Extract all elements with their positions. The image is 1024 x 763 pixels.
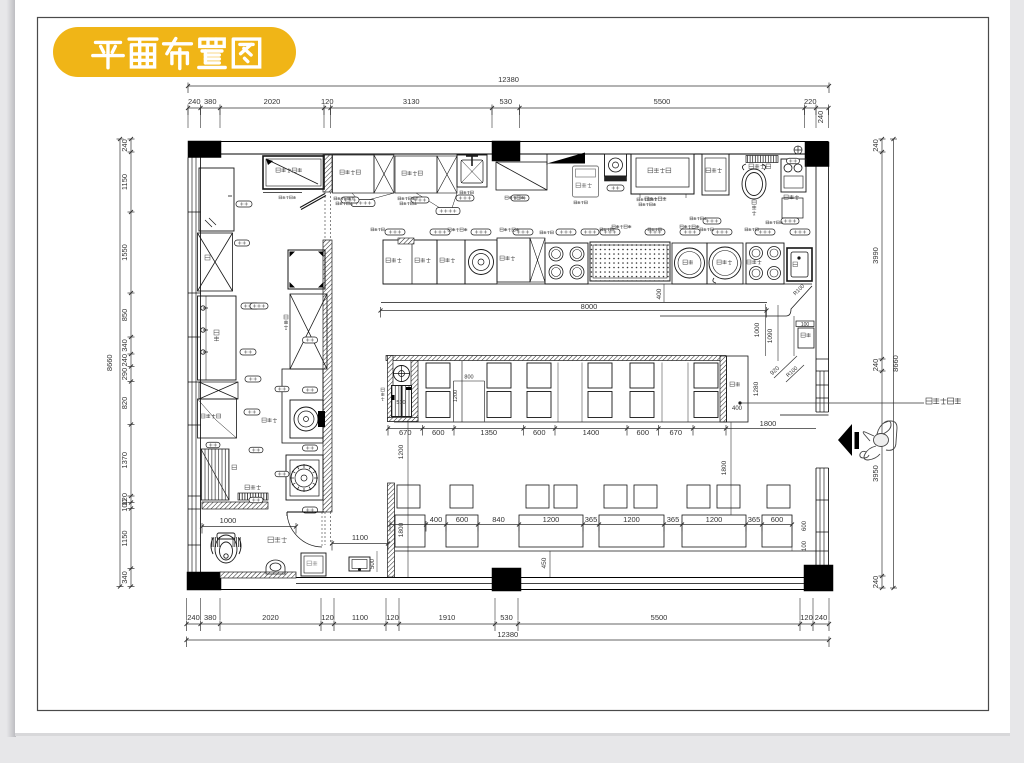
- svg-text:600: 600: [533, 428, 546, 437]
- svg-text:240: 240: [188, 97, 201, 106]
- svg-text:1200: 1200: [706, 515, 723, 524]
- svg-text:1000: 1000: [754, 322, 761, 337]
- svg-text:450: 450: [541, 557, 548, 568]
- svg-text:500: 500: [370, 558, 376, 569]
- svg-text:5500: 5500: [654, 97, 671, 106]
- svg-text:240: 240: [871, 359, 880, 372]
- svg-text:1000: 1000: [220, 516, 237, 525]
- svg-text:365: 365: [585, 515, 598, 524]
- svg-text:240: 240: [816, 111, 825, 124]
- svg-text:600: 600: [802, 520, 808, 531]
- svg-text:530: 530: [499, 97, 512, 106]
- svg-text:600: 600: [456, 515, 469, 524]
- svg-text:840: 840: [492, 515, 505, 524]
- svg-text:365: 365: [667, 515, 680, 524]
- svg-text:120: 120: [321, 97, 334, 106]
- svg-text:1280: 1280: [753, 381, 760, 396]
- svg-text:400: 400: [732, 406, 743, 412]
- svg-text:120: 120: [386, 613, 399, 622]
- svg-text:365: 365: [748, 515, 761, 524]
- svg-text:120: 120: [321, 613, 334, 622]
- svg-text:510: 510: [396, 400, 405, 406]
- svg-text:1350: 1350: [480, 428, 497, 437]
- svg-text:100: 100: [802, 540, 808, 551]
- svg-text:100: 100: [120, 499, 129, 512]
- svg-text:670: 670: [399, 428, 412, 437]
- svg-text:1150: 1150: [120, 530, 129, 546]
- svg-text:400: 400: [656, 288, 663, 299]
- svg-text:800: 800: [464, 375, 473, 381]
- svg-text:1150: 1150: [120, 174, 129, 190]
- svg-text:100: 100: [801, 322, 810, 328]
- svg-text:1200: 1200: [398, 444, 405, 459]
- svg-text:670: 670: [669, 428, 682, 437]
- svg-text:3990: 3990: [871, 247, 880, 264]
- svg-text:400: 400: [430, 515, 443, 524]
- svg-text:340: 340: [120, 571, 129, 584]
- svg-text:1910: 1910: [439, 613, 456, 622]
- svg-text:600: 600: [771, 515, 784, 524]
- svg-text:1200: 1200: [453, 390, 459, 402]
- svg-text:290: 290: [120, 368, 129, 381]
- svg-text:3130: 3130: [403, 97, 420, 106]
- svg-text:5500: 5500: [651, 613, 668, 622]
- svg-text:530: 530: [500, 613, 513, 622]
- svg-text:240: 240: [871, 576, 880, 589]
- svg-text:120: 120: [800, 613, 813, 622]
- svg-text:380: 380: [204, 613, 217, 622]
- svg-text:1100: 1100: [352, 613, 368, 622]
- svg-text:1200: 1200: [623, 515, 640, 524]
- svg-text:240: 240: [815, 613, 828, 622]
- svg-text:600: 600: [636, 428, 649, 437]
- svg-text:240: 240: [871, 139, 880, 152]
- svg-text:240: 240: [120, 354, 129, 367]
- svg-text:1200: 1200: [543, 515, 560, 524]
- svg-text:2020: 2020: [264, 97, 281, 106]
- svg-text:820: 820: [120, 397, 129, 410]
- svg-text:8660: 8660: [105, 354, 114, 371]
- svg-text:12380: 12380: [497, 630, 518, 639]
- svg-text:1800: 1800: [760, 419, 777, 428]
- svg-text:1100: 1100: [352, 533, 368, 542]
- svg-text:220: 220: [804, 97, 817, 106]
- svg-text:12380: 12380: [498, 75, 519, 84]
- svg-text:1090: 1090: [767, 328, 774, 343]
- svg-text:1370: 1370: [120, 452, 129, 469]
- svg-text:240: 240: [120, 139, 129, 152]
- svg-text:240: 240: [187, 613, 200, 622]
- svg-text:380: 380: [204, 97, 217, 106]
- svg-text:1800: 1800: [398, 522, 405, 537]
- svg-text:1800: 1800: [721, 460, 728, 475]
- svg-text:340: 340: [120, 339, 129, 352]
- svg-text:8000: 8000: [581, 302, 598, 311]
- svg-text:1550: 1550: [120, 244, 129, 261]
- svg-text:600: 600: [432, 428, 445, 437]
- svg-text:8660: 8660: [891, 355, 900, 372]
- svg-text:850: 850: [120, 309, 129, 322]
- svg-text:1400: 1400: [583, 428, 600, 437]
- svg-text:3950: 3950: [871, 465, 880, 482]
- svg-text:2020: 2020: [262, 613, 279, 622]
